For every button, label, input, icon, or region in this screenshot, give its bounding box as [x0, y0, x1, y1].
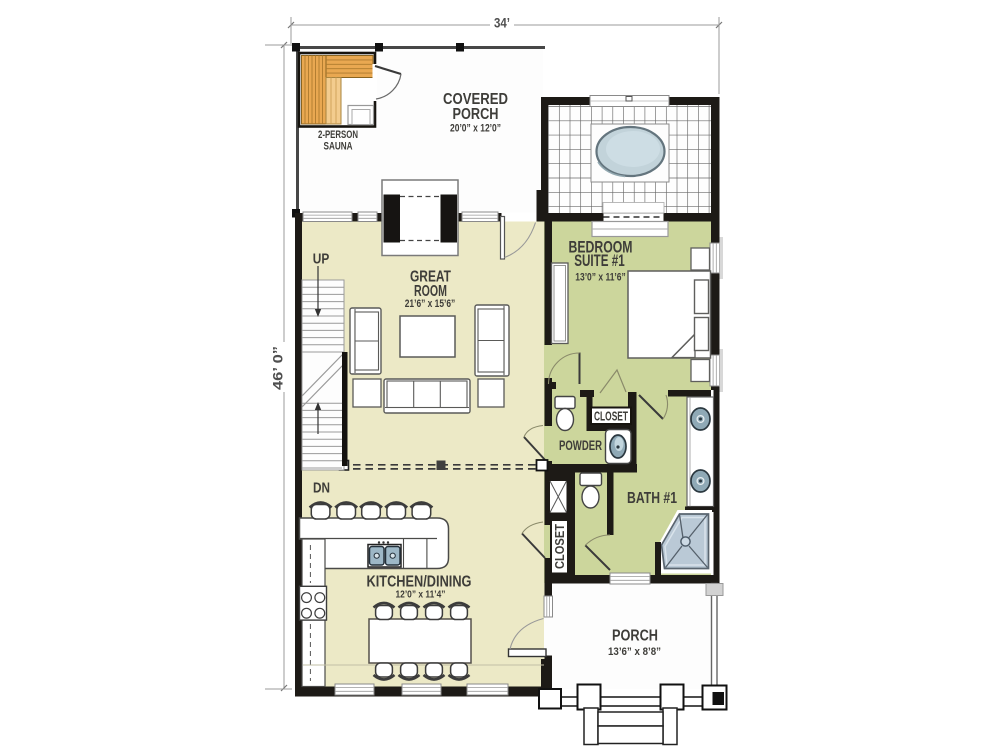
- svg-text:12’0” x 11’4”: 12’0” x 11’4”: [396, 589, 446, 601]
- svg-text:UP: UP: [313, 251, 330, 268]
- svg-text:21’6” x 15’6”: 21’6” x 15’6”: [405, 298, 456, 310]
- svg-text:34’: 34’: [494, 15, 510, 31]
- svg-text:20’0” x 12’0”: 20’0” x 12’0”: [450, 123, 501, 135]
- svg-text:CLOSET: CLOSET: [594, 410, 628, 424]
- svg-text:2-PERSON: 2-PERSON: [318, 129, 358, 141]
- svg-text:PORCH: PORCH: [453, 106, 499, 123]
- svg-text:DN: DN: [313, 480, 330, 497]
- svg-text:BATH #1: BATH #1: [627, 490, 677, 507]
- svg-text:13’0” x 11’6”: 13’0” x 11’6”: [575, 272, 626, 284]
- svg-text:SUITE #1: SUITE #1: [574, 252, 625, 270]
- svg-text:SAUNA: SAUNA: [324, 141, 353, 153]
- svg-text:PORCH: PORCH: [612, 628, 658, 645]
- svg-text:46’ 0”: 46’ 0”: [270, 346, 286, 390]
- svg-text:13’6” x 8’8”: 13’6” x 8’8”: [608, 646, 661, 658]
- svg-text:POWDER: POWDER: [559, 438, 602, 453]
- svg-text:CLOSET: CLOSET: [553, 524, 567, 569]
